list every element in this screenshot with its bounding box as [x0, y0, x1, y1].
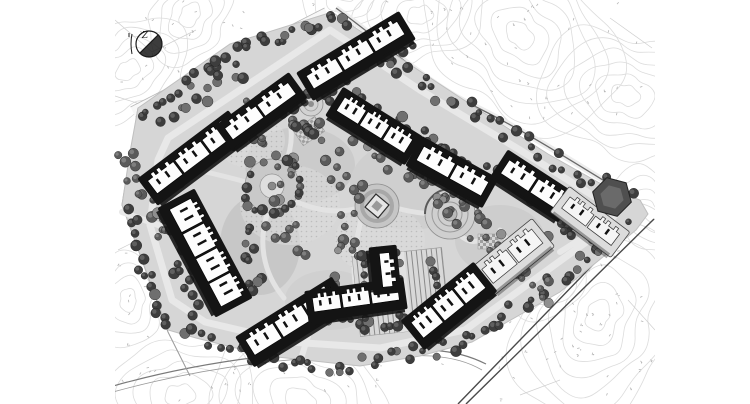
north-arrow: Z	[129, 31, 162, 57]
site-plan-page: Z	[0, 0, 750, 404]
north-arrow-label: Z	[141, 31, 149, 41]
north-arrow-tick	[129, 33, 132, 54]
master-plan-svg: Z	[0, 0, 750, 404]
